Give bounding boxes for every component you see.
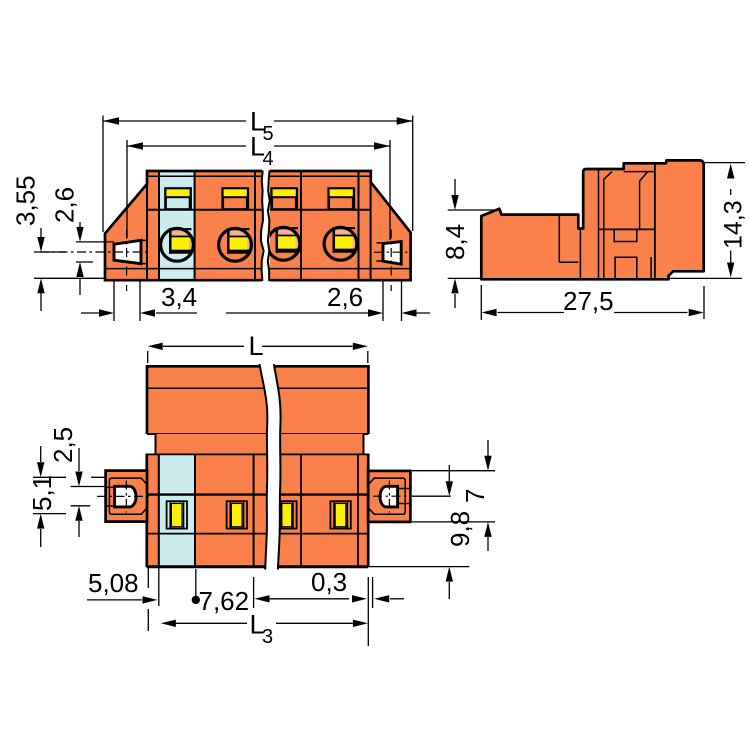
svg-text:3,55: 3,55 xyxy=(11,175,41,226)
svg-text:14,3: 14,3 xyxy=(720,200,748,249)
svg-text:27,5: 27,5 xyxy=(563,286,614,316)
svg-text:4: 4 xyxy=(263,148,274,170)
svg-text:2,6: 2,6 xyxy=(327,282,363,312)
svg-text:8,4: 8,4 xyxy=(440,224,470,260)
svg-text:5,1: 5,1 xyxy=(27,475,57,511)
svg-text:0,3: 0,3 xyxy=(311,567,347,597)
svg-text:7: 7 xyxy=(460,489,490,503)
svg-text:L: L xyxy=(249,331,264,361)
svg-text:5,08: 5,08 xyxy=(88,568,139,598)
svg-text:9,8: 9,8 xyxy=(445,511,475,547)
svg-text:2,6: 2,6 xyxy=(50,187,80,223)
svg-text:3,4: 3,4 xyxy=(161,282,197,312)
svg-text:2,5: 2,5 xyxy=(48,427,78,463)
svg-text:3: 3 xyxy=(262,626,273,648)
svg-text:7,62: 7,62 xyxy=(199,586,250,616)
